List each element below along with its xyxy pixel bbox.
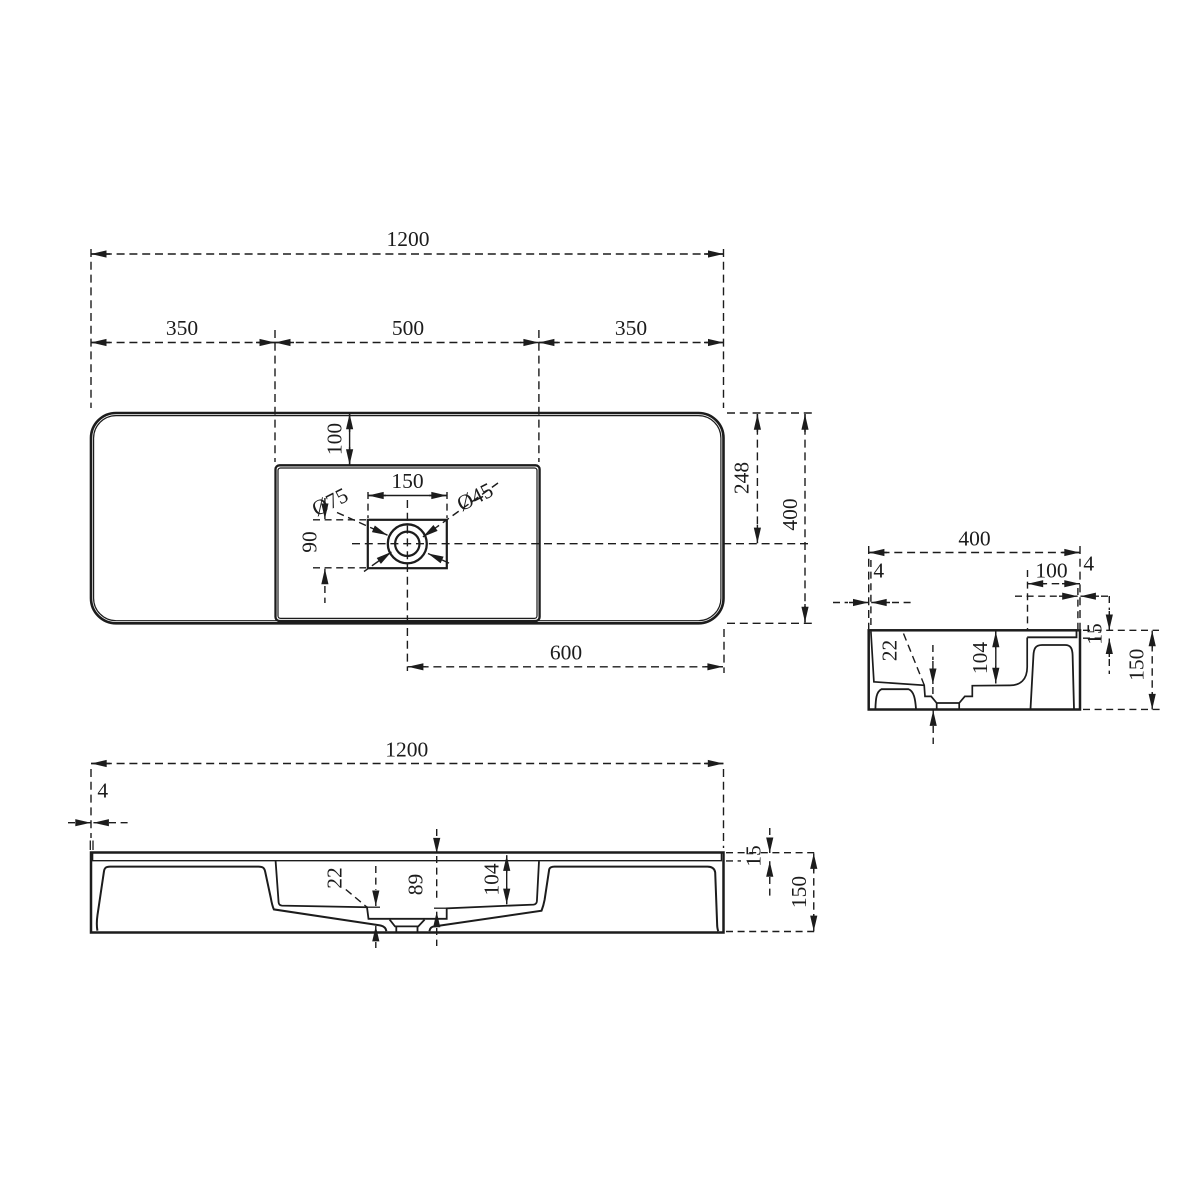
svg-text:150: 150 (391, 469, 423, 493)
svg-text:4: 4 (873, 559, 884, 583)
svg-text:1200: 1200 (385, 738, 428, 762)
svg-text:150: 150 (787, 876, 811, 908)
svg-text:89: 89 (404, 874, 428, 896)
svg-text:90: 90 (298, 531, 322, 553)
svg-text:22: 22 (878, 640, 902, 662)
svg-text:104: 104 (968, 642, 992, 675)
svg-text:15: 15 (1083, 623, 1107, 645)
svg-text:22: 22 (323, 867, 347, 889)
svg-text:100: 100 (323, 423, 347, 455)
svg-text:600: 600 (550, 641, 582, 665)
svg-text:248: 248 (730, 462, 754, 494)
svg-text:100: 100 (1035, 559, 1067, 583)
svg-text:400: 400 (958, 527, 990, 551)
svg-text:4: 4 (97, 779, 108, 803)
svg-text:500: 500 (392, 316, 424, 340)
svg-text:400: 400 (778, 498, 802, 530)
svg-text:104: 104 (480, 863, 504, 896)
svg-text:15: 15 (742, 845, 766, 867)
svg-text:350: 350 (615, 316, 647, 340)
svg-text:1200: 1200 (387, 227, 430, 251)
svg-text:Ø45: Ø45 (453, 478, 497, 516)
svg-text:4: 4 (1083, 552, 1094, 576)
svg-text:Ø75: Ø75 (308, 483, 352, 521)
svg-text:350: 350 (166, 316, 198, 340)
svg-text:150: 150 (1125, 649, 1149, 681)
